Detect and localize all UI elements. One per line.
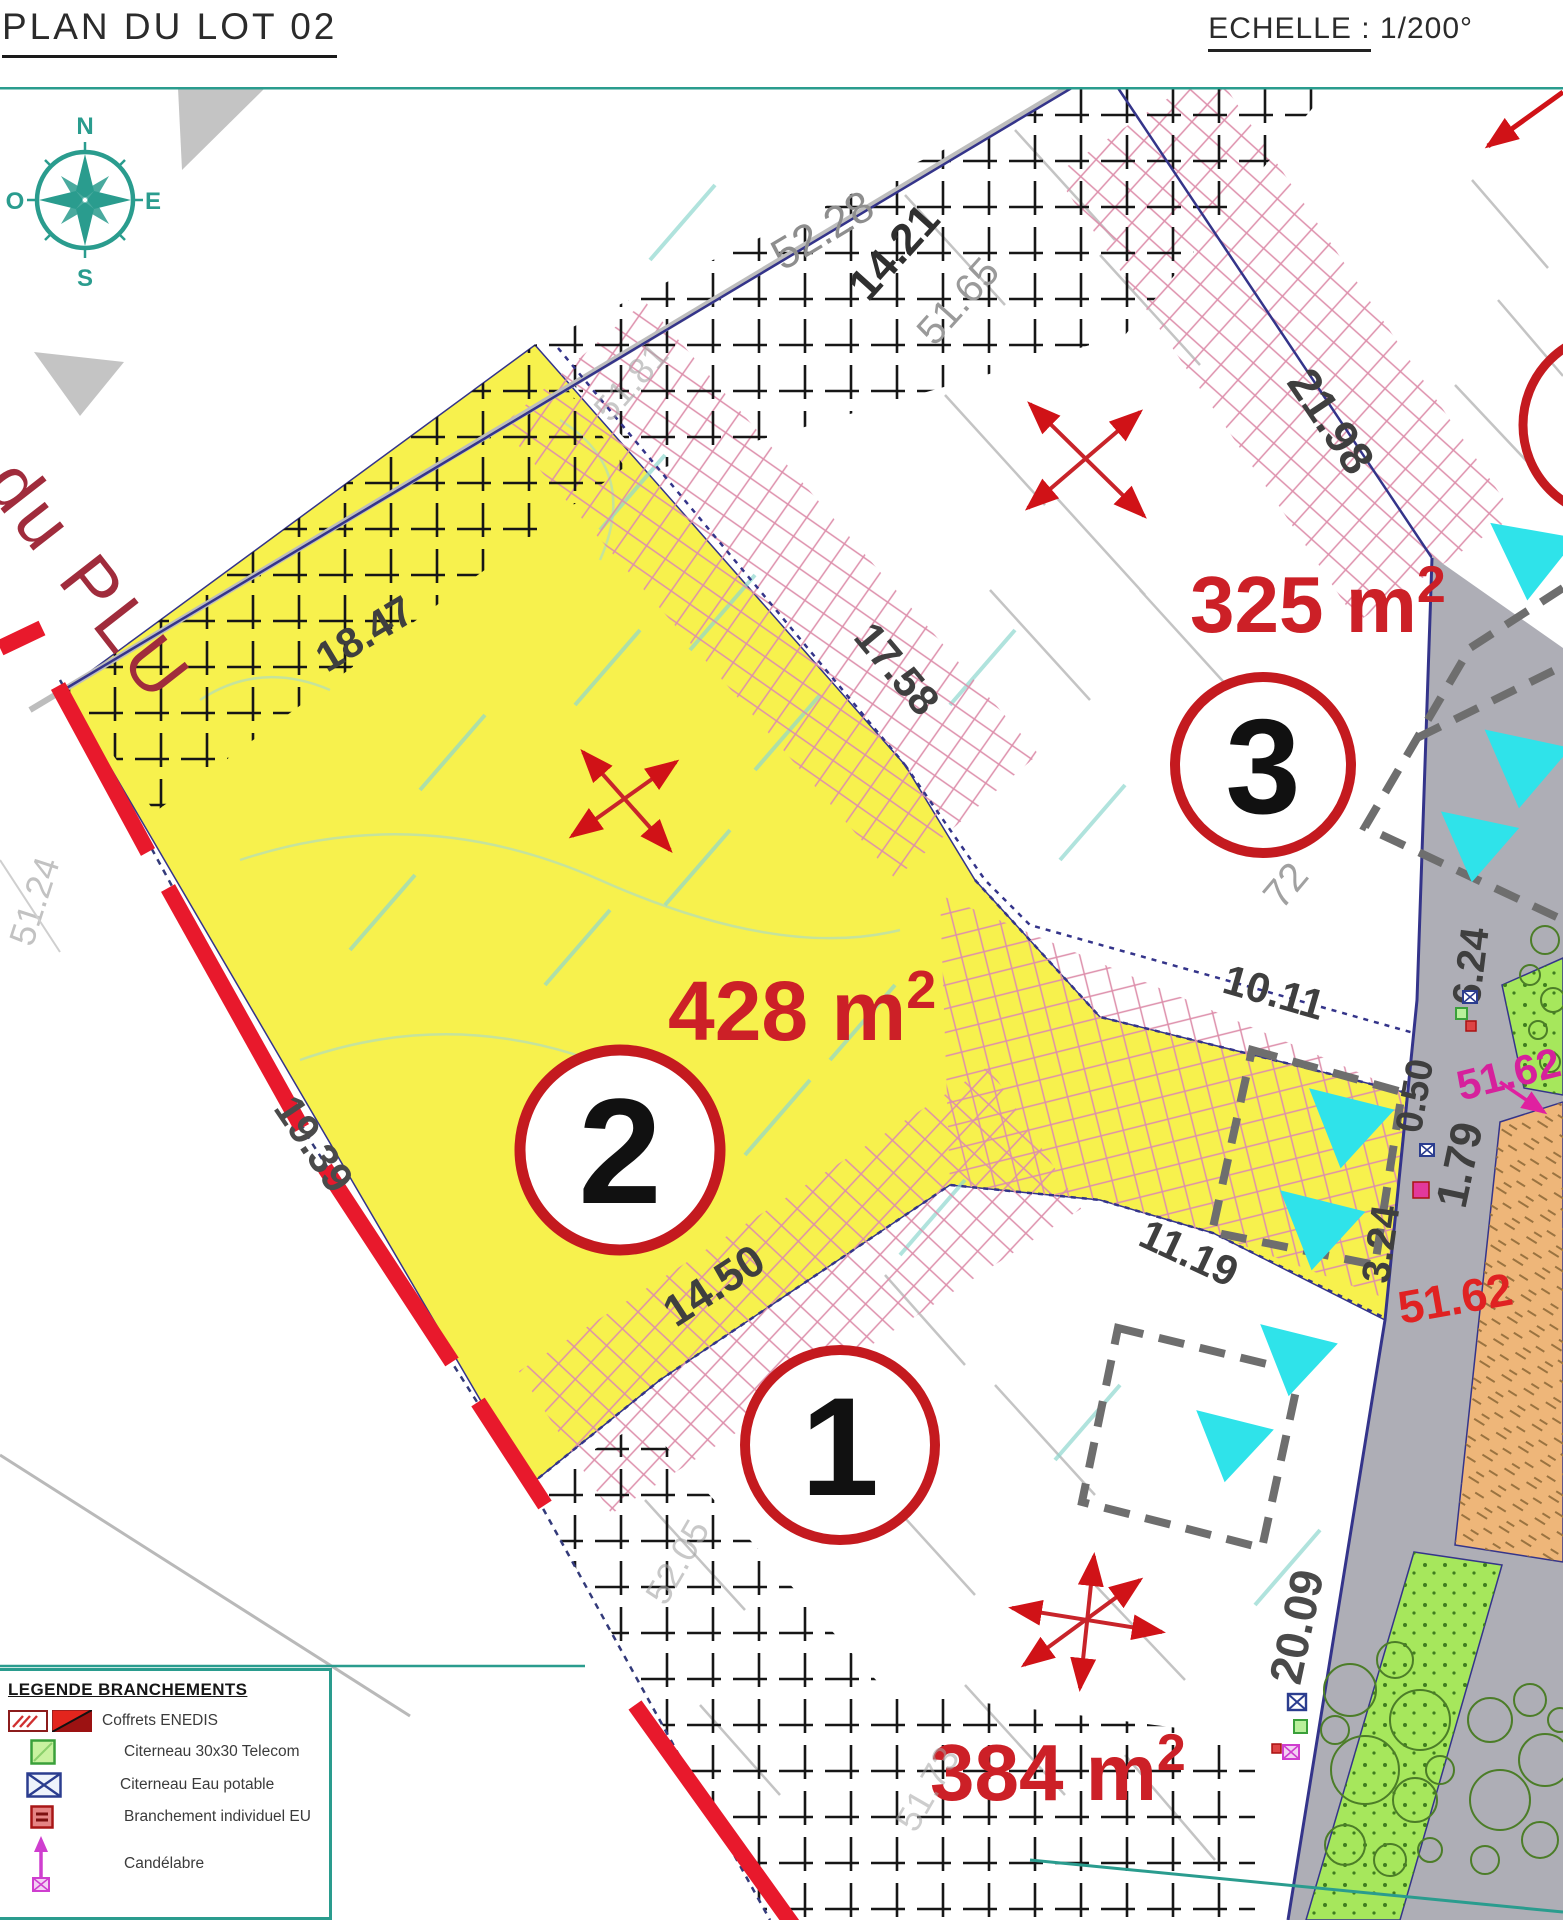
eau-potable-icon [1463, 991, 1477, 1003]
eau-potable-icon [1288, 1694, 1306, 1710]
dimension-label: 10.11 [1218, 955, 1330, 1029]
cross-lot-1 [1012, 1556, 1162, 1688]
branchement-eu-icon [8, 1805, 114, 1829]
page-title: PLAN DU LOT 02 [2, 6, 337, 58]
adjacent-lot-circle [1523, 333, 1563, 517]
lot-2-area: 428 m2 [668, 960, 936, 1058]
scale-label: ECHELLE : [1208, 12, 1370, 52]
telecom-icon [1456, 1008, 1467, 1019]
telecom-icon [1294, 1720, 1307, 1733]
compass-south-label: S [77, 265, 93, 292]
eau-potable-icon [1420, 1144, 1434, 1156]
candelabre-icon [8, 1836, 114, 1892]
legend-item-branchement-eu: Branchement individuel EU [8, 1805, 321, 1829]
legend-item-label: Citerneau 30x30 Telecom [124, 1743, 300, 1761]
branchement-eu-icon [1272, 1744, 1281, 1753]
dimension-label: 20.09 [1259, 1565, 1334, 1688]
legend-item-telecom: Citerneau 30x30 Telecom [8, 1739, 321, 1765]
lot-3-number: 3 [1225, 691, 1300, 842]
compass-west-label: O [6, 188, 25, 215]
legend-item-label: Coffrets ENEDIS [102, 1712, 218, 1730]
cross-lot-3 [1028, 404, 1144, 516]
legend-item-label: Branchement individuel EU [124, 1808, 311, 1826]
dimension-label: 72 [1255, 854, 1317, 916]
legend-title: LEGENDE BRANCHEMENTS [8, 1680, 321, 1700]
north-access-arrow [1488, 92, 1563, 146]
legend-item-coffrets-enedis: Coffrets ENEDIS [8, 1710, 321, 1732]
legend-item-candelabre: Candélabre [8, 1836, 321, 1892]
lot-2-number: 2 [578, 1067, 661, 1235]
site-plan-drawing: 2 3 1 428 m2 325 m2 384 m2 52.28 14.21 5… [0, 0, 1563, 1920]
compass-rose: N S O E [6, 113, 161, 292]
lot-3-area: 325 m2 [1190, 556, 1446, 649]
legend-item-label: Citerneau Eau potable [120, 1776, 274, 1794]
spot-elevation-label: 51.24 [1, 852, 68, 950]
scale-indicator: ECHELLE : 1/200° [1208, 12, 1473, 46]
telecom-citerneau-icon [8, 1739, 114, 1765]
coffret-icon [1413, 1182, 1429, 1198]
compass-east-label: E [145, 188, 161, 215]
cadastral-plan: { "header": { "title": "PLAN DU LOT 02",… [0, 0, 1563, 1920]
lot-1-area: 384 m2 [930, 1724, 1186, 1817]
legend-item-eau-potable: Citerneau Eau potable [8, 1772, 321, 1798]
eau-potable-citerneau-icon [8, 1772, 110, 1798]
enedis-coffret-icon [8, 1710, 92, 1732]
compass-north-label: N [76, 113, 93, 140]
candelabre-base-icon [1283, 1745, 1299, 1759]
legend-box: LEGENDE BRANCHEMENTS Coffrets ENEDIS Cit… [0, 1668, 332, 1920]
legend-item-label: Candélabre [124, 1855, 204, 1873]
branchement-eu-icon [1466, 1021, 1476, 1031]
lot-1-number: 1 [801, 1368, 879, 1525]
scale-value: 1/200° [1371, 12, 1473, 45]
survey-marks [34, 88, 265, 416]
